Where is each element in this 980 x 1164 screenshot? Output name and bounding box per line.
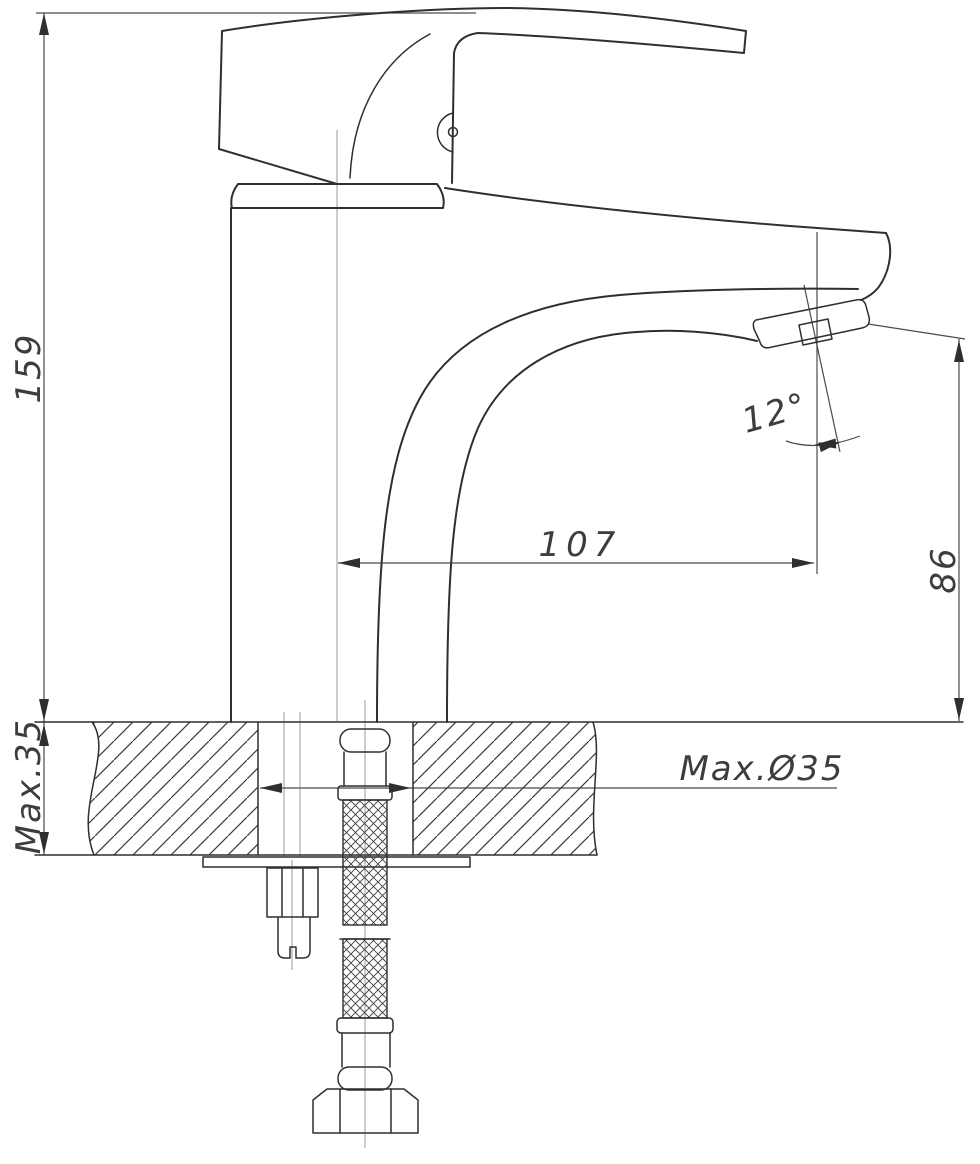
counter-hatch-right <box>413 722 597 855</box>
technical-drawing-page: 159 107 86 12° Max.35 Max.Ø35 <box>0 0 980 1164</box>
handle-bottom-edge <box>219 149 337 184</box>
arrow-107-right <box>792 558 814 568</box>
hose-neck <box>342 1033 390 1067</box>
ext-line-outlet <box>868 324 965 339</box>
handle-front-curve <box>350 34 430 178</box>
aerator-housing <box>753 300 869 348</box>
arrow-159-top <box>39 13 49 35</box>
stud-lines-in-hole <box>284 712 300 857</box>
label-deck-thickness: Max.35 <box>9 718 49 854</box>
arrow-86-bottom <box>954 698 964 720</box>
label-total-height: 159 <box>9 333 49 404</box>
label-outlet-angle: 12° <box>738 385 813 442</box>
arrow-107-left <box>338 558 360 568</box>
handle-screw-boss <box>437 113 453 152</box>
faucet-outline <box>219 8 890 722</box>
counter-hatch-left <box>88 722 258 855</box>
faucet-installation-drawing: 159 107 86 12° Max.35 Max.Ø35 <box>0 0 980 1164</box>
washer-plate <box>203 857 470 867</box>
spout-underside-inner <box>377 289 858 722</box>
handle-lever <box>219 8 746 183</box>
label-outlet-height: 86 <box>924 546 964 593</box>
spout-top-edge <box>445 188 890 300</box>
label-hole-diameter: Max.Ø35 <box>679 749 844 789</box>
arrow-159-bottom <box>39 699 49 721</box>
threaded-shank <box>343 800 387 925</box>
mounting-stud <box>278 917 310 958</box>
arrow-86-top <box>954 340 964 362</box>
label-spout-reach: 107 <box>539 525 622 565</box>
arrow-hole-left <box>260 783 282 793</box>
braided-hose <box>343 939 387 1018</box>
